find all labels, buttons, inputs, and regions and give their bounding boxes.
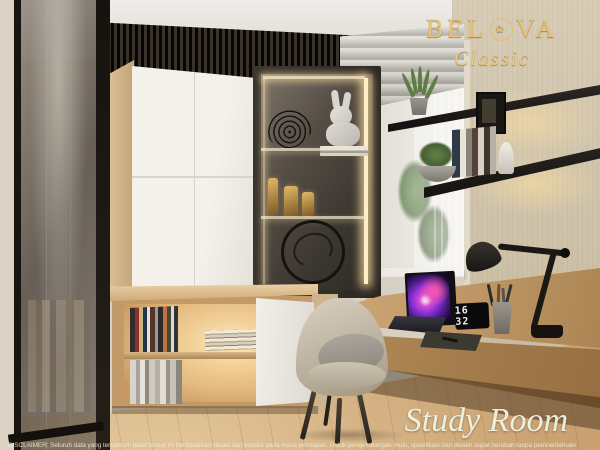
glass-partition-frame-right <box>96 0 110 450</box>
laptop-keyboard <box>388 316 446 334</box>
left-wall-strip <box>0 0 14 450</box>
gold-figurine <box>284 186 298 216</box>
brand-logo: BEL ✿ VA Classic <box>400 14 584 71</box>
study-room-render: 16 32 BEL ✿ V <box>0 0 600 450</box>
cabinet-led-strip-right <box>364 78 368 284</box>
gold-figurines <box>266 172 318 216</box>
glass-reflection <box>28 300 90 412</box>
cabinet-led-strip-top <box>263 76 365 79</box>
emblem-flower-glyph: ✿ <box>495 24 507 35</box>
low-cabinet-shadow <box>112 406 318 414</box>
shelf-books-row <box>452 126 496 178</box>
brand-name: BEL ✿ VA <box>400 14 584 44</box>
brand-name-left: BEL <box>426 14 487 44</box>
chair-seat-front <box>308 362 386 388</box>
magazine-stack <box>205 329 258 351</box>
gold-figurine <box>268 178 278 214</box>
cabinet-glass-shelf-2 <box>261 216 365 219</box>
laptop-screen-wallpaper <box>407 273 451 321</box>
cabinet-books-top <box>130 306 178 352</box>
brand-name-right: VA <box>516 14 558 44</box>
glass-partition-frame-left <box>14 0 21 450</box>
wardrobe-white-doors <box>132 66 256 306</box>
chair-shadow <box>292 428 407 442</box>
rabbit-body <box>326 122 360 147</box>
disclaimer-text: DISCLAIMER: Seluruh data yang tercantum … <box>8 442 596 449</box>
framed-art-image <box>482 99 496 123</box>
ring-sculpture <box>281 220 345 284</box>
desk-lamp-base <box>531 325 563 338</box>
door-seam-horizontal <box>132 176 256 178</box>
rabbit-figurine <box>322 90 364 148</box>
digital-clock: 16 32 <box>454 302 489 330</box>
ring-sculpture-detail <box>289 228 338 273</box>
brand-collection: Classic <box>400 46 584 71</box>
cabinet-led-strip-left <box>263 78 265 284</box>
lamp-joint <box>560 248 570 258</box>
cabinet-book-stack <box>320 146 368 156</box>
gold-figurine <box>302 192 314 216</box>
cabinet-books-bottom <box>130 360 182 404</box>
chess-piece-sculpture <box>498 142 514 174</box>
logo-o-emblem-icon: ✿ <box>490 18 513 41</box>
room-caption: Study Room <box>405 402 568 440</box>
door-seam-vertical <box>194 66 195 306</box>
aloe-plant <box>400 66 440 102</box>
clock-time: 16 32 <box>454 304 489 328</box>
wardrobe-side-panel <box>108 60 134 302</box>
